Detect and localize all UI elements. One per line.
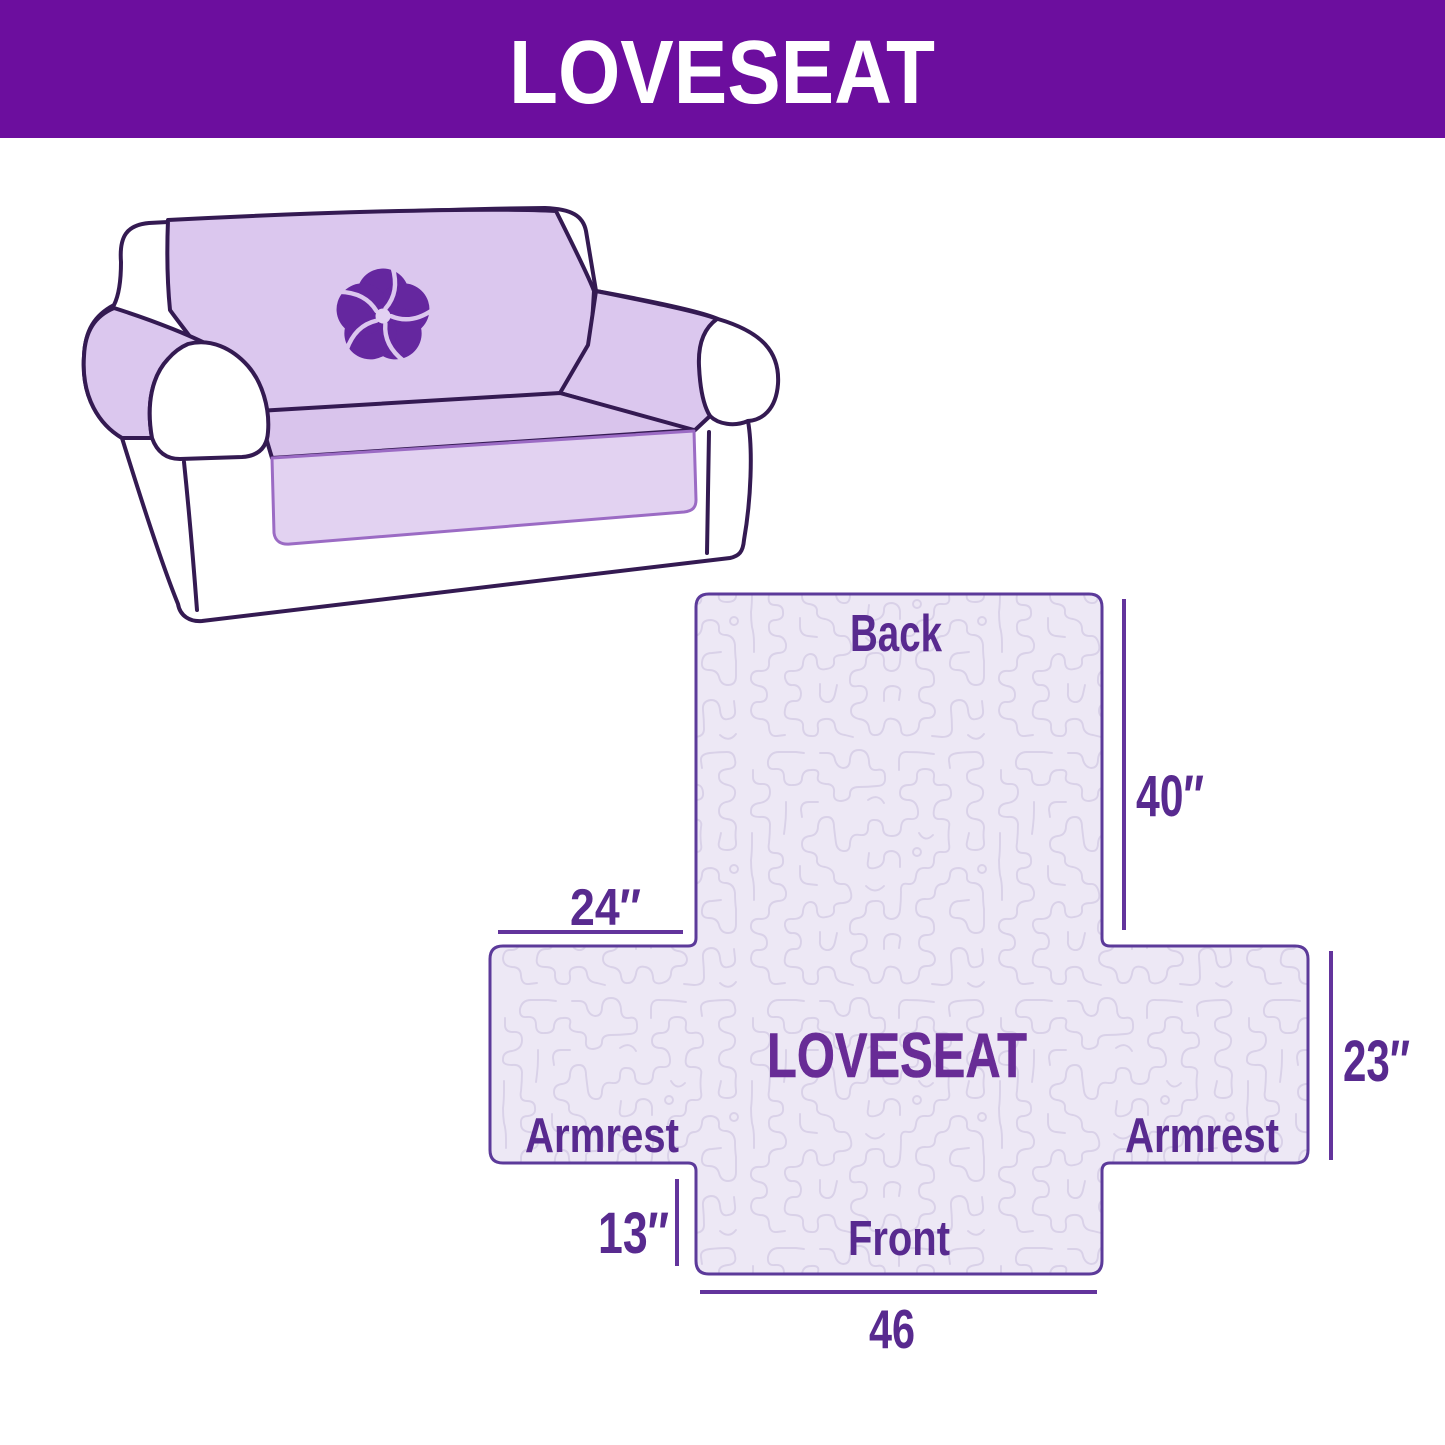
svg-text:Armrest: Armrest [1125, 1109, 1279, 1163]
svg-text:13″: 13″ [598, 1201, 669, 1266]
svg-text:23″: 23″ [1343, 1029, 1410, 1094]
svg-text:LOVESEAT: LOVESEAT [509, 23, 935, 123]
svg-text:Armrest: Armrest [525, 1109, 679, 1163]
svg-text:Back: Back [850, 605, 942, 663]
svg-text:Front: Front [848, 1212, 950, 1266]
svg-text:46: 46 [869, 1298, 915, 1360]
svg-text:LOVESEAT: LOVESEAT [767, 1021, 1027, 1091]
svg-text:40″: 40″ [1136, 764, 1204, 829]
svg-text:24″: 24″ [570, 879, 641, 937]
